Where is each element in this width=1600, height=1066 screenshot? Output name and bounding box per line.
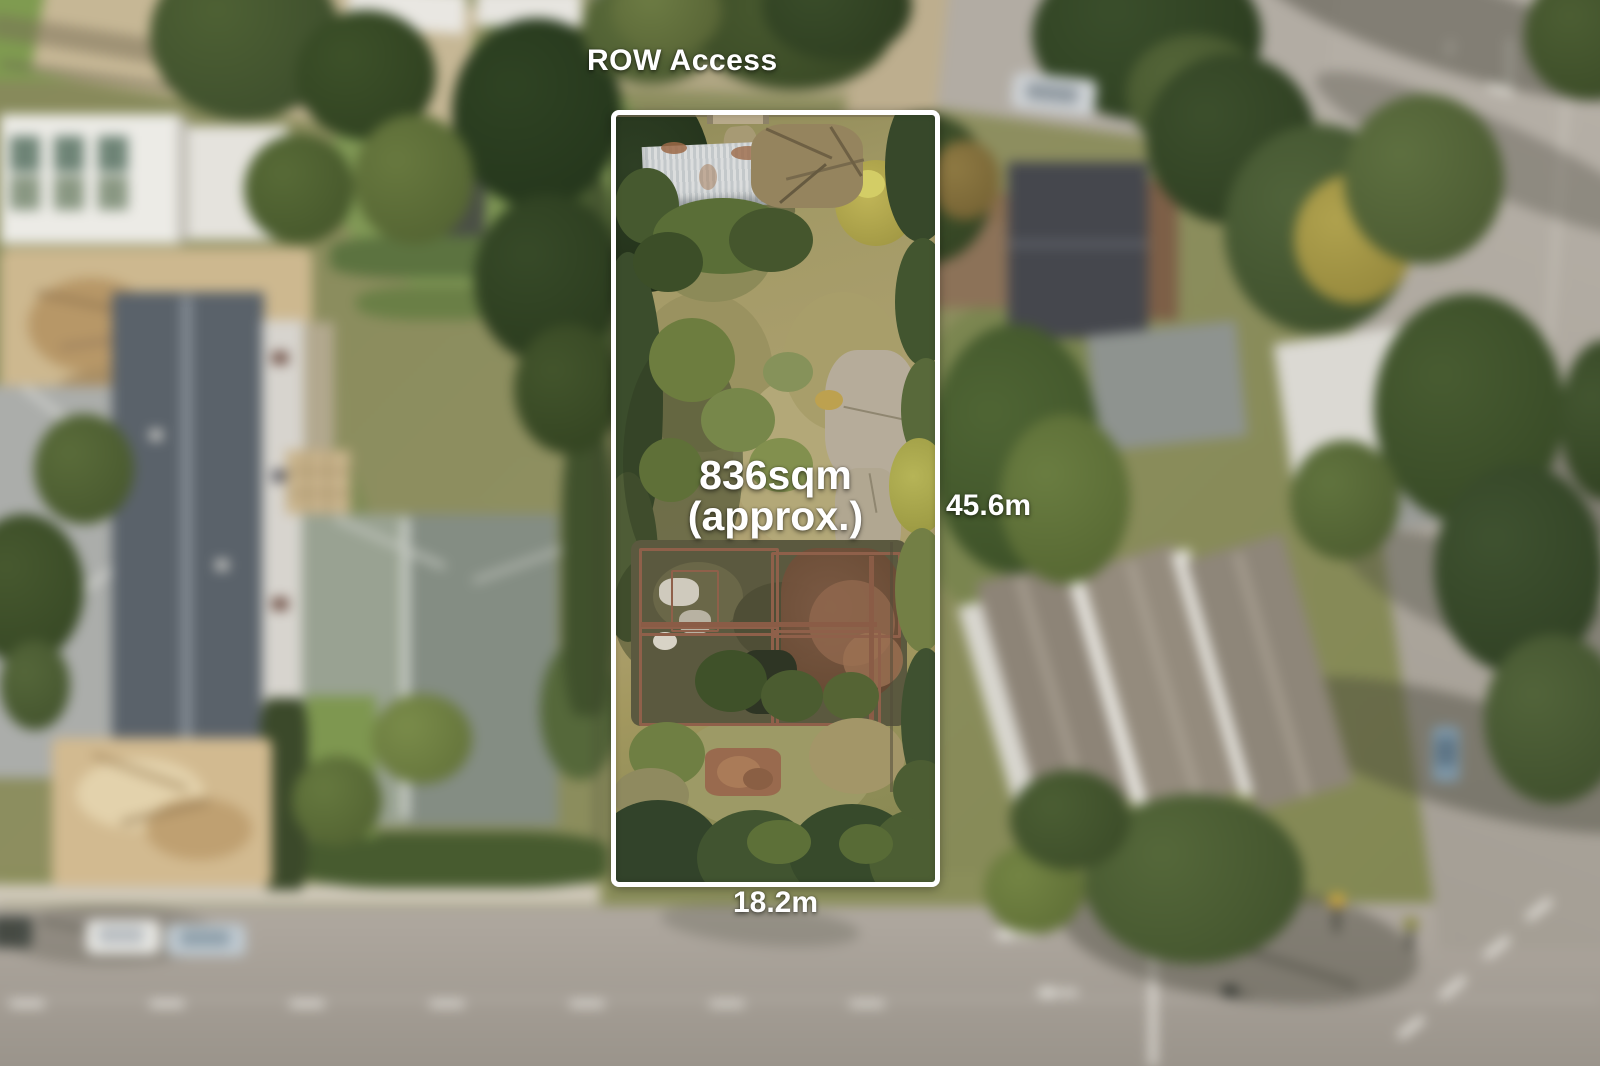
car-glass: [98, 926, 144, 944]
tree: [1344, 94, 1504, 264]
tree: [372, 694, 472, 784]
tree: [930, 140, 1000, 220]
tree: [0, 640, 70, 730]
lane-dash: [710, 1001, 744, 1007]
skylight: [10, 176, 40, 210]
row-access-label: ROW Access: [587, 44, 778, 78]
depth-dimension-label: 45.6m: [946, 489, 1031, 523]
hedge: [562, 426, 614, 716]
tree: [292, 756, 382, 846]
pole: [8, 920, 12, 946]
skylight: [98, 136, 128, 172]
pergola-beam: [326, 450, 329, 514]
car: [0, 916, 32, 948]
pergola-beam: [306, 450, 309, 514]
shadow: [1230, 994, 1252, 998]
aerial-photo: ROW Access 836sqm (approx.) 45.6m 18.2m: [0, 0, 1600, 1066]
traffic-signal-pole: [1408, 926, 1413, 950]
area-label-block: 836sqm (approx.): [613, 455, 938, 537]
window: [272, 598, 288, 610]
lane-dash: [290, 1001, 324, 1007]
chimney: [150, 430, 162, 440]
car-glass: [1436, 738, 1456, 766]
lane-dash: [570, 1001, 604, 1007]
window: [272, 352, 288, 364]
tree: [34, 414, 134, 524]
lane-dash: [10, 1001, 44, 1007]
skylight: [10, 136, 40, 172]
tree: [514, 324, 624, 454]
skylight: [54, 176, 84, 210]
lane-dash: [850, 1001, 884, 1007]
traffic-signal-head: [1404, 918, 1418, 929]
frontage-dimension-label: 18.2m: [613, 886, 938, 920]
traffic-signal-head: [1329, 894, 1345, 907]
roof-ridge: [181, 296, 192, 758]
roof: [1086, 320, 1247, 451]
skylight: [54, 136, 84, 172]
tree: [244, 134, 354, 244]
area-value: 836sqm: [613, 455, 938, 496]
pergola-beam: [286, 492, 350, 495]
pergola: [286, 450, 350, 514]
roof: [1008, 162, 1148, 338]
skylight: [98, 176, 128, 210]
chimney: [216, 560, 228, 570]
area-qualifier: (approx.): [613, 496, 938, 537]
tree: [354, 114, 474, 244]
roof-ridge: [1008, 240, 1148, 248]
lane-dash: [430, 1001, 464, 1007]
tree: [1010, 770, 1130, 870]
tree: [1290, 440, 1400, 560]
timber: [146, 798, 252, 860]
car-glass: [180, 930, 230, 946]
pergola-beam: [286, 470, 350, 473]
lane-dash: [150, 1001, 184, 1007]
building-seam: [178, 118, 188, 242]
